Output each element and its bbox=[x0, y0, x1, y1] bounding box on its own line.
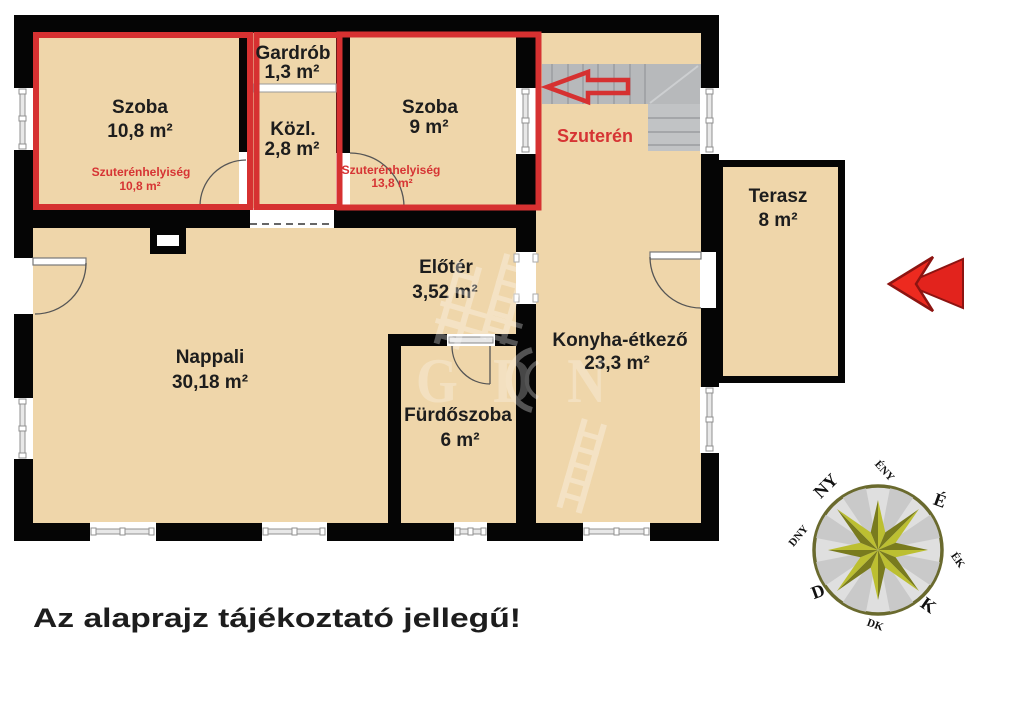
svg-text:Terasz: Terasz bbox=[749, 186, 808, 207]
svg-text:Szoba: Szoba bbox=[112, 97, 168, 118]
svg-text:8 m²: 8 m² bbox=[758, 210, 797, 231]
svg-text:Szuterénhelyiség: Szuterénhelyiség bbox=[342, 163, 441, 177]
svg-text:Közl.: Közl. bbox=[270, 119, 315, 140]
svg-text:9 m²: 9 m² bbox=[409, 117, 448, 138]
svg-text:2,8 m²: 2,8 m² bbox=[265, 139, 320, 160]
svg-text:13,8 m²: 13,8 m² bbox=[371, 176, 412, 190]
svg-text:10,8 m²: 10,8 m² bbox=[107, 121, 172, 142]
svg-text:Szoba: Szoba bbox=[402, 97, 458, 118]
svg-text:1,3 m²: 1,3 m² bbox=[265, 62, 320, 83]
svg-text:6 m²: 6 m² bbox=[440, 430, 479, 451]
svg-text:Szuterén: Szuterén bbox=[557, 126, 633, 146]
svg-text:10,8 m²: 10,8 m² bbox=[119, 179, 160, 193]
svg-text:30,18 m²: 30,18 m² bbox=[172, 372, 248, 393]
svg-text:Az alaprajz tájékoztató jelleg: Az alaprajz tájékoztató jellegű! bbox=[33, 603, 521, 633]
svg-text:Szuterénhelyiség: Szuterénhelyiség bbox=[92, 165, 191, 179]
svg-text:Nappali: Nappali bbox=[176, 347, 245, 368]
svg-text:GDN: GDN bbox=[416, 345, 641, 416]
svg-text:Gardrób: Gardrób bbox=[256, 43, 331, 64]
